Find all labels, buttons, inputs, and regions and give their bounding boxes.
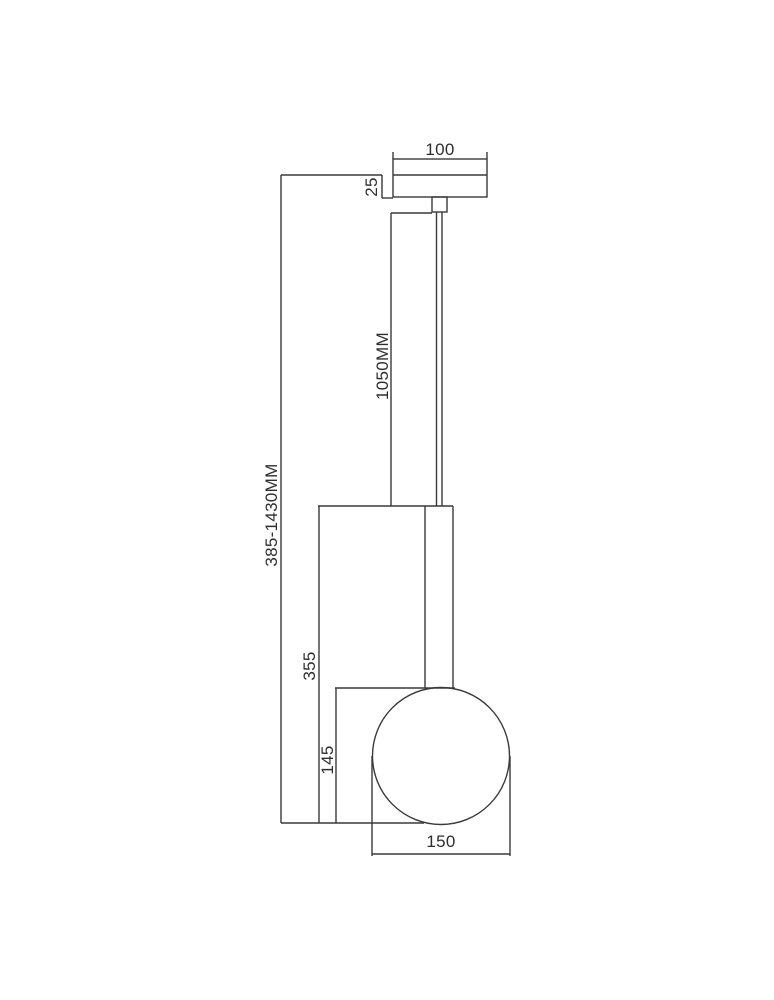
dim-label-globe-overlap: 145: [318, 745, 337, 774]
dimension-labels: 100 25 1050MM 385-1430MM 355 145 150: [262, 140, 456, 851]
dim-label-cord-length: 1050MM: [373, 332, 392, 400]
dim-label-body-height: 355: [300, 651, 319, 680]
dim-label-overall-height: 385-1430MM: [262, 463, 281, 566]
pendant-lamp-dimension-drawing: 100 25 1050MM 385-1430MM 355 145 150: [0, 0, 774, 1000]
canopy-outline: [393, 159, 487, 197]
fixture-outline: [373, 152, 510, 825]
dim-label-canopy-width: 100: [425, 140, 454, 159]
dimension-lines: [281, 175, 510, 856]
technical-drawing-canvas: 100 25 1050MM 385-1430MM 355 145 150: [0, 0, 774, 1000]
dim-label-canopy-height: 25: [362, 177, 381, 197]
dim-label-globe-diameter: 150: [426, 832, 455, 851]
drawing-linework: [281, 152, 510, 856]
globe-outline: [373, 688, 510, 825]
stem-outline: [432, 197, 447, 212]
